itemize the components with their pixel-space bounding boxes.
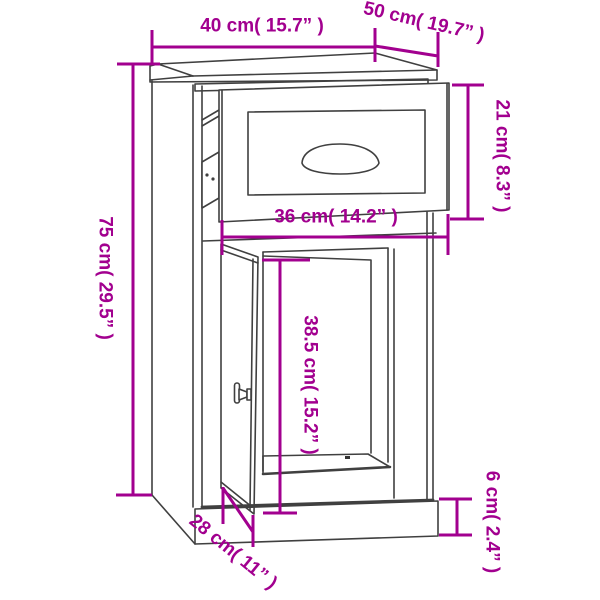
interior-shelf	[263, 454, 390, 474]
shelf-fitting-mark	[345, 456, 350, 459]
cabinet-top-panel	[150, 53, 437, 82]
dim-drawer-height-line	[450, 85, 484, 219]
dim-overall-height-line	[116, 64, 160, 495]
cabinet-line-drawing	[0, 0, 600, 600]
dim-plinth-height-label: 6 cm( 2.4” )	[483, 471, 502, 573]
left-side-panel	[152, 81, 202, 544]
dim-door-opening-height-label: 38.5 cm( 15.2” )	[301, 315, 320, 454]
dimension-diagram: 40 cm( 15.7” ) 50 cm( 19.7” ) 21 cm( 8.3…	[0, 0, 600, 600]
dim-overall-width-label: 40 cm( 15.7” )	[200, 17, 324, 36]
drawer-slide-rails	[202, 110, 219, 208]
dim-drawer-width-label: 36 cm( 14.2” )	[274, 208, 398, 227]
door	[221, 244, 258, 514]
dim-overall-height-label: 75 cm( 29.5” )	[96, 216, 115, 340]
dim-plinth-height-line	[439, 499, 472, 535]
dim-drawer-height-label: 21 cm( 8.3” )	[493, 100, 512, 213]
